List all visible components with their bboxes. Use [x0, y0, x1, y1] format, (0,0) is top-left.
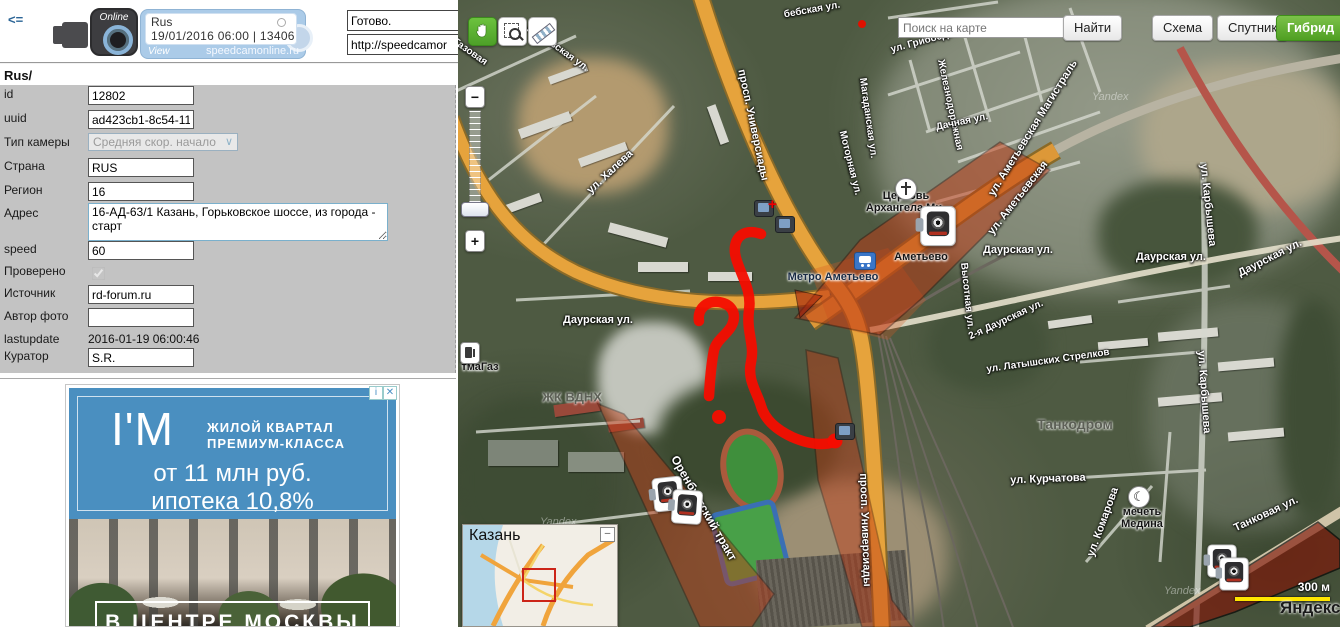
left-panel: <= Online Rus 19/01/2016 06:00 | 13406 V…: [0, 0, 458, 627]
ruler-tool-button[interactable]: [528, 17, 557, 46]
hand-icon: [475, 23, 489, 39]
street-label: Даурская ул.: [1136, 251, 1206, 263]
station-label: Аметьево: [894, 251, 948, 263]
ad-line1: ЖИЛОЙ КВАРТАЛ: [207, 420, 334, 435]
mosque-icon: ☾: [1128, 486, 1150, 508]
id-field[interactable]: [88, 86, 194, 105]
id-label: id: [4, 87, 13, 101]
church-icon: [895, 178, 917, 200]
map-search-input[interactable]: [898, 17, 1066, 38]
district-label: ЖК ВДНХ: [542, 390, 602, 405]
pan-tool-button[interactable]: [468, 17, 497, 46]
info-box: Rus 19/01/2016 06:00 | 13406: [145, 13, 297, 45]
panel-separator: [0, 378, 456, 379]
question-mark-dot: [712, 410, 726, 424]
uuid-label: uuid: [4, 111, 27, 125]
region-label: Регион: [4, 183, 43, 197]
camera-info-panel: Rus 19/01/2016 06:00 | 13406 View speedc…: [140, 9, 306, 59]
speedcam-marker[interactable]: [671, 489, 704, 525]
poi-label: мечеть: [1123, 506, 1162, 518]
red-dot-marker: [858, 20, 866, 28]
minimap-city-label: Казань: [469, 527, 520, 545]
minimap-collapse-button[interactable]: –: [600, 527, 615, 542]
street-label: Даурская ул.: [563, 314, 633, 326]
map-type-scheme-button[interactable]: Схема: [1152, 15, 1213, 41]
camera-type-label: Тип камеры: [4, 135, 70, 149]
region-field[interactable]: [88, 182, 194, 201]
ad-line2: ПРЕМИУМ-КЛАССА: [207, 436, 345, 451]
lastupdate-value: 2016-01-19 06:00:46: [88, 332, 199, 346]
ad-brand-logo: I'M: [111, 402, 174, 456]
country-field[interactable]: [88, 158, 194, 177]
ruler-icon: [532, 23, 556, 44]
camera-lens-icon: [103, 25, 133, 55]
watermark: Yandex: [1164, 585, 1201, 597]
country-label: Страна: [4, 159, 45, 173]
status-input[interactable]: [347, 10, 461, 31]
zoom-in-button[interactable]: +: [465, 230, 485, 252]
scale-text: 300 м: [1235, 580, 1330, 594]
header-separator: [0, 62, 458, 64]
metro-label: Метро Аметьево: [788, 271, 879, 283]
poi-label: Медина: [1121, 518, 1163, 530]
red-cross-marker: +: [768, 196, 777, 213]
source-field[interactable]: [88, 285, 194, 304]
adchoices-info-icon[interactable]: i: [369, 386, 383, 400]
status-dot-icon: [277, 18, 286, 27]
photo-author-label: Автор фото: [4, 309, 68, 323]
camera-type-value: Средняя скор. начало: [93, 135, 216, 149]
ad-blue-block: I'M ЖИЛОЙ КВАРТАЛ ПРЕМИУМ-КЛАССА от 11 м…: [69, 388, 396, 519]
gas-station-icon: [460, 342, 480, 364]
find-button[interactable]: Найти: [1063, 15, 1122, 41]
logo-online-label: Online: [92, 12, 136, 23]
address-label: Адрес: [4, 206, 38, 220]
street-label: Даурская ул.: [983, 244, 1053, 256]
zoom-slider-track[interactable]: [469, 110, 481, 206]
url-input[interactable]: [347, 34, 461, 55]
ad-price: от 11 млн руб.: [69, 460, 396, 488]
source-label: Источник: [4, 286, 55, 300]
site-label: speedcamonline.ru: [206, 45, 299, 57]
metro-icon[interactable]: [854, 252, 876, 270]
curator-label: Куратор: [4, 349, 49, 363]
camera-type-select[interactable]: Средняя скор. начало ∨: [88, 133, 238, 151]
speedcam-logo-body: [62, 22, 88, 48]
traffic-cam-icon[interactable]: [835, 423, 855, 440]
speed-label: speed: [4, 242, 37, 256]
yandex-logo[interactable]: Яндекс: [1280, 598, 1340, 618]
chevron-down-icon: ∨: [225, 135, 233, 148]
ad-footer-text: В ЦЕНТРЕ МОСКВЫ: [95, 601, 370, 626]
ad-close-icon[interactable]: ✕: [383, 386, 397, 400]
speed-field[interactable]: [88, 241, 194, 260]
magnifier-handle: [518, 35, 524, 41]
watermark: Yandex: [1092, 91, 1129, 103]
speedcam-marker[interactable]: [920, 206, 956, 246]
info-datetime: 19/01/2016 06:00 | 13406: [151, 29, 295, 43]
breadcrumb: Rus/: [4, 68, 32, 83]
photo-author-field[interactable]: [88, 308, 194, 327]
info-region: Rus: [151, 15, 172, 29]
camera-form: id uuid Тип камеры Средняя скор. начало …: [0, 85, 456, 373]
curator-field[interactable]: [88, 348, 194, 367]
lastupdate-label: lastupdate: [4, 332, 59, 346]
verified-label: Проверено: [4, 264, 66, 278]
map-type-hybrid-button[interactable]: Гибрид: [1276, 15, 1340, 41]
speedcam-logo: Online: [90, 8, 138, 56]
zoom-select-tool-button[interactable]: [498, 17, 527, 46]
ad-banner[interactable]: i ✕ I'M ЖИЛОЙ КВАРТАЛ ПРЕМИУМ-КЛАССА от …: [65, 384, 400, 627]
zoom-out-button[interactable]: −: [465, 86, 485, 108]
ad-photo: В ЦЕНТРЕ МОСКВЫ: [69, 519, 396, 626]
district-label: Танкодром: [1037, 416, 1113, 432]
uuid-field[interactable]: [88, 110, 194, 129]
minimap[interactable]: Казань –: [462, 524, 618, 627]
back-link[interactable]: <=: [8, 12, 23, 27]
ad-mortgage: ипотека 10,8%: [69, 488, 396, 516]
address-field[interactable]: 16-АД-63/1 Казань, Горьковское шоссе, из…: [88, 203, 388, 241]
view-link[interactable]: View: [148, 46, 170, 57]
map-canvas[interactable]: просп. Универсиады просп. Универсиады Да…: [458, 0, 1340, 627]
zoom-slider-knob[interactable]: [461, 202, 489, 217]
traffic-cam-icon[interactable]: [775, 216, 795, 233]
verified-checkbox[interactable]: [92, 267, 105, 280]
